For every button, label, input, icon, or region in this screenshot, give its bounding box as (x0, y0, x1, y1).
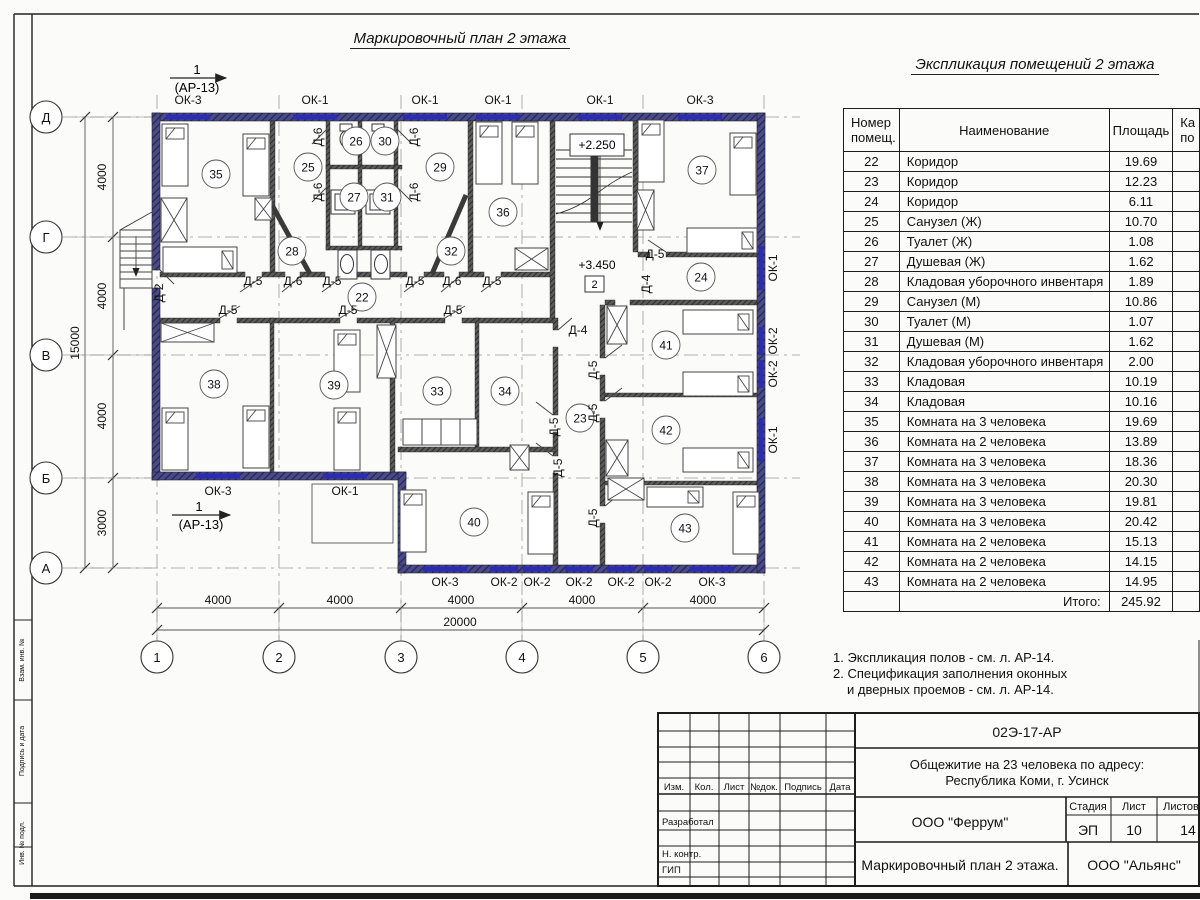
cell: Санузел (М) (899, 292, 1109, 312)
room-number: 25 (301, 161, 315, 175)
bed-icon (528, 492, 554, 554)
wardrobe-icon (161, 323, 214, 342)
sheet-value: 10 (1126, 822, 1142, 838)
interior-wall (605, 300, 615, 305)
window (196, 474, 240, 479)
sheets-value: 14 (1180, 822, 1196, 838)
col-header-number: Номерпомещ. (844, 109, 900, 152)
cell: 30 (844, 312, 900, 332)
interior-wall (326, 246, 402, 250)
elevation-lower: +3.450 (578, 258, 615, 272)
bed-icon (683, 310, 753, 334)
cell (1173, 152, 1200, 172)
bed-icon (334, 408, 360, 470)
door-label: Д-5 (483, 274, 502, 288)
cell: 43 (844, 572, 900, 592)
door-label: Д-5 (551, 458, 565, 477)
window (759, 246, 764, 290)
cell: 39 (844, 492, 900, 512)
drawing-name: Маркировочный план 2 этажа. (861, 857, 1058, 873)
window (759, 418, 764, 462)
cell: Комната на 3 человека (899, 512, 1109, 532)
interior-wall (501, 272, 550, 277)
door-label: Д-6 (407, 182, 421, 201)
window-label: ОК-2 (524, 575, 551, 589)
table-row: 34Кладовая10.16 (844, 392, 1200, 412)
cell: Туалет (Ж) (899, 232, 1109, 252)
door-label: Д-6 (284, 274, 303, 288)
interior-wall (237, 318, 340, 323)
interior-wall (326, 165, 402, 169)
cell: Коридор (899, 152, 1109, 172)
cell (1173, 492, 1200, 512)
dimension-total: 15000 (68, 326, 82, 360)
room-number: 38 (207, 378, 221, 392)
table-row: 37Комната на 3 человека18.36 (844, 452, 1200, 472)
wardrobe-icon (608, 478, 644, 500)
wardrobe-icon (637, 190, 654, 230)
room-number: 41 (659, 339, 673, 353)
cell: 14.95 (1109, 572, 1173, 592)
interior-wall (600, 305, 605, 358)
cell: 10.19 (1109, 372, 1173, 392)
section-ref: (АР-13) (179, 517, 224, 532)
titleblock-column-label: Подпись (784, 782, 822, 793)
room-number: 30 (378, 135, 392, 149)
table-row: 41Комната на 2 человека15.13 (844, 532, 1200, 552)
bed-icon (243, 406, 269, 468)
cell (1173, 432, 1200, 452)
cell: 20.30 (1109, 472, 1173, 492)
room-number: 28 (285, 245, 299, 259)
window (565, 567, 593, 572)
table-row: 39Комната на 3 человека19.81 (844, 492, 1200, 512)
storage-shelf (403, 419, 477, 445)
room-number: 33 (430, 385, 444, 399)
table-row: 26Туалет (Ж)1.08 (844, 232, 1200, 252)
col-header-area: Площадь (1109, 109, 1173, 152)
window-label: ОК-2 (608, 575, 635, 589)
window-label: ОК-1 (587, 93, 614, 107)
cell: Санузел (Ж) (899, 212, 1109, 232)
cell (1173, 272, 1200, 292)
room-number: 37 (695, 164, 709, 178)
cell: 27 (844, 252, 900, 272)
cell: Комната на 2 человека (899, 432, 1109, 452)
window-label: ОК-1 (766, 254, 780, 281)
dimension-value: 4000 (205, 593, 232, 607)
col-header-category: Капо (1173, 109, 1200, 152)
cell: 28 (844, 272, 900, 292)
cell (844, 592, 900, 612)
interior-wall (600, 375, 605, 401)
cell: 35 (844, 412, 900, 432)
window (293, 115, 337, 120)
cell (1173, 172, 1200, 192)
door-label: Д-6 (311, 182, 325, 201)
window-label: ОК-1 (485, 93, 512, 107)
titleblock-column-label: №док. (750, 782, 778, 793)
cell: 37 (844, 452, 900, 472)
room-number: 24 (694, 271, 708, 285)
table-row: 35Комната на 3 человека19.69 (844, 412, 1200, 432)
window-label: ОК-3 (205, 484, 232, 498)
sheet-label: Лист (1122, 801, 1146, 813)
window-label: ОК-1 (302, 93, 329, 107)
cell: Комната на 2 человека (899, 532, 1109, 552)
cell (1173, 392, 1200, 412)
contractor-firm: ООО "Альянс" (1087, 857, 1181, 873)
cell (1173, 552, 1200, 572)
grid-axis-label: 5 (639, 650, 646, 665)
room-number: 32 (444, 245, 458, 259)
window (523, 567, 551, 572)
cell: 18.36 (1109, 452, 1173, 472)
table-row: 40Комната на 3 человека20.42 (844, 512, 1200, 532)
window-label: ОК-1 (766, 426, 780, 453)
stage-value: ЭП (1078, 822, 1098, 838)
interior-wall (468, 121, 473, 272)
wardrobe-icon (510, 445, 529, 470)
dimension-total: 20000 (443, 615, 477, 629)
cell (1173, 292, 1200, 312)
room-number: 39 (327, 379, 341, 393)
bed-icon (162, 124, 188, 186)
room-number: 31 (380, 191, 394, 205)
cell: 33 (844, 372, 900, 392)
cell: 19.69 (1109, 152, 1173, 172)
window (476, 115, 520, 120)
border-stamp-label: Подпись и дата (19, 726, 26, 776)
cell: 10.86 (1109, 292, 1173, 312)
cell (1173, 472, 1200, 492)
cell: 13.89 (1109, 432, 1173, 452)
cell: 2.00 (1109, 352, 1173, 372)
cell (1173, 232, 1200, 252)
window-label: ОК-2 (491, 575, 518, 589)
interior-wall (326, 121, 330, 165)
table-row: 42Комната на 2 человека14.15 (844, 552, 1200, 572)
room-number: 43 (678, 522, 692, 536)
cell: Кладовая (899, 392, 1109, 412)
cell: 1.89 (1109, 272, 1173, 292)
grid-axis-label: Г (42, 230, 49, 245)
dimension-value: 3000 (95, 509, 109, 536)
titleblock-column-label: Дата (829, 782, 851, 793)
cell: 38 (844, 472, 900, 492)
cell: 15.13 (1109, 532, 1173, 552)
door-label: Д-5 (219, 303, 238, 317)
titleblock-role-label: Разработал (662, 817, 714, 828)
border-stamp-label: Взам. инв. № (19, 638, 26, 681)
table-row: 38Комната на 3 человека20.30 (844, 472, 1200, 492)
interior-wall (553, 318, 558, 330)
dimension-value: 4000 (95, 282, 109, 309)
cell: 10.16 (1109, 392, 1173, 412)
window (423, 567, 467, 572)
cell: 1.08 (1109, 232, 1173, 252)
grid-axis-label: 1 (153, 650, 160, 665)
door-label: Д-5 (586, 508, 600, 527)
bed-icon (687, 228, 757, 253)
notes: 1. Экспликация полов - см. л. АР-14.2. С… (833, 650, 1067, 698)
door-label: Д-6 (311, 127, 325, 146)
table-row: 23Коридор12.23 (844, 172, 1200, 192)
cell: 22 (844, 152, 900, 172)
cell: 41 (844, 532, 900, 552)
room-number: 36 (496, 206, 510, 220)
table-row: 25Санузел (Ж)10.70 (844, 212, 1200, 232)
title-block-text: 02Э-17-АР Общежитие на 23 человека по ад… (861, 724, 1199, 873)
sink-icon (341, 255, 354, 274)
interior-wall (600, 523, 605, 565)
door-label: Д-5 (339, 303, 358, 317)
interior-wall (600, 418, 605, 506)
window (166, 115, 210, 120)
bed-icon (476, 122, 502, 184)
object-line1: Общежитие на 23 человека по адресу: (910, 757, 1144, 772)
dimension-value: 4000 (569, 593, 596, 607)
elevation-upper: +2.250 (578, 138, 615, 152)
door-label: Д-5 (547, 417, 561, 436)
cell: 24 (844, 192, 900, 212)
interior-wall (459, 272, 484, 277)
cell: 6.11 (1109, 192, 1173, 212)
window (490, 567, 518, 572)
bed-icon (163, 247, 237, 273)
cell: Кладовая уборочного инвентаря (899, 272, 1109, 292)
cell (1173, 372, 1200, 392)
window (578, 115, 622, 120)
door-label: Д-6 (443, 274, 462, 288)
interior-wall (553, 347, 558, 415)
section-marker-top: 1 (АР-13) (170, 62, 226, 95)
bed-icon (638, 120, 664, 182)
exterior-wall (152, 288, 160, 480)
bed-icon (647, 487, 703, 507)
cell: 32 (844, 352, 900, 372)
grid-axis-label: В (42, 348, 51, 363)
cell (1173, 352, 1200, 372)
window (678, 115, 722, 120)
titleblock-role-label: Н. контр. (662, 849, 701, 860)
window-label: ОК-3 (687, 93, 714, 107)
cell: 14.15 (1109, 552, 1173, 572)
cell: 1.62 (1109, 332, 1173, 352)
wardrobe-icon (607, 306, 627, 344)
cell (1173, 592, 1200, 612)
cell: Кладовая уборочного инвентаря (899, 352, 1109, 372)
cell (1173, 212, 1200, 232)
room-number: 27 (347, 191, 361, 205)
dimension-value: 4000 (95, 163, 109, 190)
wardrobe-icon (161, 198, 187, 242)
room-number: 26 (349, 135, 363, 149)
exterior-wall (152, 113, 160, 270)
cell: Душевая (Ж) (899, 252, 1109, 272)
cell: 40 (844, 512, 900, 532)
cell: 26 (844, 232, 900, 252)
cell: Комната на 2 человека (899, 572, 1109, 592)
door-label: Д-4 (569, 323, 588, 337)
window (323, 474, 367, 479)
window-label: ОК-2 (645, 575, 672, 589)
sheets-label: Листов (1163, 801, 1199, 813)
bed-icon (733, 492, 759, 554)
wardrobe-icon (515, 248, 548, 270)
border-stamp-label: Инв. № подл. (19, 821, 26, 865)
titleblock-column-label: Изм. (664, 782, 684, 793)
room-number: 34 (498, 385, 512, 399)
note-line: 1. Экспликация полов - см. л. АР-14. (833, 650, 1067, 666)
cell: 19.69 (1109, 412, 1173, 432)
window-label: ОК-2 (566, 575, 593, 589)
cell: 25 (844, 212, 900, 232)
window-label: ОК-1 (412, 93, 439, 107)
cell: Комната на 3 человека (899, 492, 1109, 512)
grid-axis-label: 3 (397, 650, 404, 665)
cell: 36 (844, 432, 900, 452)
cell: 19.81 (1109, 492, 1173, 512)
dimension-value: 4000 (95, 402, 109, 429)
dimension-value: 4000 (690, 593, 717, 607)
table-row: 22Коридор19.69 (844, 152, 1200, 172)
cell: 1.62 (1109, 252, 1173, 272)
window-label: ОК-1 (332, 484, 359, 498)
cell: 34 (844, 392, 900, 412)
cell (1173, 412, 1200, 432)
door-label: Д-6 (407, 127, 421, 146)
section-marker-bottom: 1 (АР-13) (172, 499, 230, 532)
interior-wall (550, 121, 555, 318)
interior-wall (398, 447, 555, 452)
cell: 31 (844, 332, 900, 352)
window (403, 115, 447, 120)
table-row: 32Кладовая уборочного инвентаря2.00 (844, 352, 1200, 372)
note-line: 2. Спецификация заполнения оконных (833, 666, 1067, 682)
interior-wall (630, 300, 757, 305)
cell (1173, 332, 1200, 352)
bed-icon (683, 372, 753, 396)
window (690, 567, 734, 572)
grid-axis-label: 4 (518, 650, 525, 665)
bed-icon (400, 490, 426, 552)
room-schedule-table: Номерпомещ. Наименование Площадь Капо 22… (843, 108, 1200, 612)
cell (1173, 512, 1200, 532)
exterior-wall (152, 472, 406, 480)
bed-icon (512, 122, 538, 184)
door-label: Д-5 (586, 403, 600, 422)
cell: Комната на 2 человека (899, 552, 1109, 572)
grid-axis-label: 6 (760, 650, 767, 665)
cell (1173, 572, 1200, 592)
cell (1173, 532, 1200, 552)
door-label: Д-4 (639, 274, 653, 293)
titleblock-role-label: ГИП (662, 865, 681, 876)
grid-axis-label: Д (42, 110, 51, 125)
door-label: Д-5 (444, 303, 463, 317)
window (759, 327, 764, 355)
table-row: 31Душевая (М)1.62 (844, 332, 1200, 352)
wardrobe-icon (255, 198, 272, 220)
exterior-wall (152, 113, 765, 121)
cell: 29 (844, 292, 900, 312)
cell (1173, 192, 1200, 212)
door-label: Д-5 (646, 247, 665, 261)
cell: 1.07 (1109, 312, 1173, 332)
grid-axis-label: Б (42, 471, 51, 486)
cell: Комната на 3 человека (899, 452, 1109, 472)
window (607, 567, 635, 572)
titleblock-column-label: Кол. (695, 782, 714, 793)
interior-wall (326, 165, 330, 250)
cell: 42 (844, 552, 900, 572)
section-number: 1 (193, 62, 200, 77)
table-row: 33Кладовая10.19 (844, 372, 1200, 392)
wardrobe-icon (377, 325, 396, 378)
cell: 23 (844, 172, 900, 192)
fire-escape-ladder (120, 212, 152, 330)
section-number: 1 (195, 499, 202, 514)
total-row: Итого:245.92 (844, 592, 1200, 612)
door-leaf (536, 402, 553, 415)
sheet-bottom-edge (30, 893, 1200, 899)
cell (1173, 452, 1200, 472)
design-firm: ООО "Феррум" (912, 814, 1009, 830)
window-label: ОК-3 (432, 575, 459, 589)
window-label: ОК-3 (175, 93, 202, 107)
window-label: ОК-2 (766, 327, 780, 354)
sheet-border-labels: Взам. инв. №Подпись и датаИнв. № подл. (19, 638, 26, 864)
table-row: 28Кладовая уборочного инвентаря1.89 (844, 272, 1200, 292)
cell: Туалет (М) (899, 312, 1109, 332)
cell: Комната на 3 человека (899, 412, 1109, 432)
interior-wall (270, 318, 274, 472)
table-row: 29Санузел (М)10.86 (844, 292, 1200, 312)
cell: Душевая (М) (899, 332, 1109, 352)
note-line: и дверных проемов - см. л. АР-14. (833, 682, 1067, 698)
door-label: Д-2 (152, 283, 166, 302)
cell: Кладовая (899, 372, 1109, 392)
cell: Итого: (899, 592, 1109, 612)
room-number: 42 (659, 424, 673, 438)
stage-label: Стадия (1069, 801, 1107, 813)
cell: Коридор (899, 172, 1109, 192)
door-label: Д-5 (323, 274, 342, 288)
table-row: 30Туалет (М)1.07 (844, 312, 1200, 332)
window (644, 567, 672, 572)
window (759, 360, 764, 388)
cell: 12.23 (1109, 172, 1173, 192)
window-label: ОК-3 (699, 575, 726, 589)
interior-wall (160, 318, 220, 323)
cell: 10.70 (1109, 212, 1173, 232)
interior-wall (300, 272, 325, 277)
grid-axis-label: 2 (275, 650, 282, 665)
dimension-value: 4000 (448, 593, 475, 607)
drawing-sheet: { "titles": { "plan": "Маркировочный пла… (0, 0, 1200, 900)
interior-wall (633, 121, 638, 252)
dimension-value: 4000 (327, 593, 354, 607)
window-label: ОК-2 (766, 360, 780, 387)
bed-icon (162, 408, 188, 470)
sink-icon (375, 255, 388, 274)
door-leaf (605, 345, 622, 358)
titleblock-column-label: Лист (724, 782, 745, 793)
cell: Коридор (899, 192, 1109, 212)
wardrobe-icon (606, 440, 628, 476)
cell (1173, 312, 1200, 332)
